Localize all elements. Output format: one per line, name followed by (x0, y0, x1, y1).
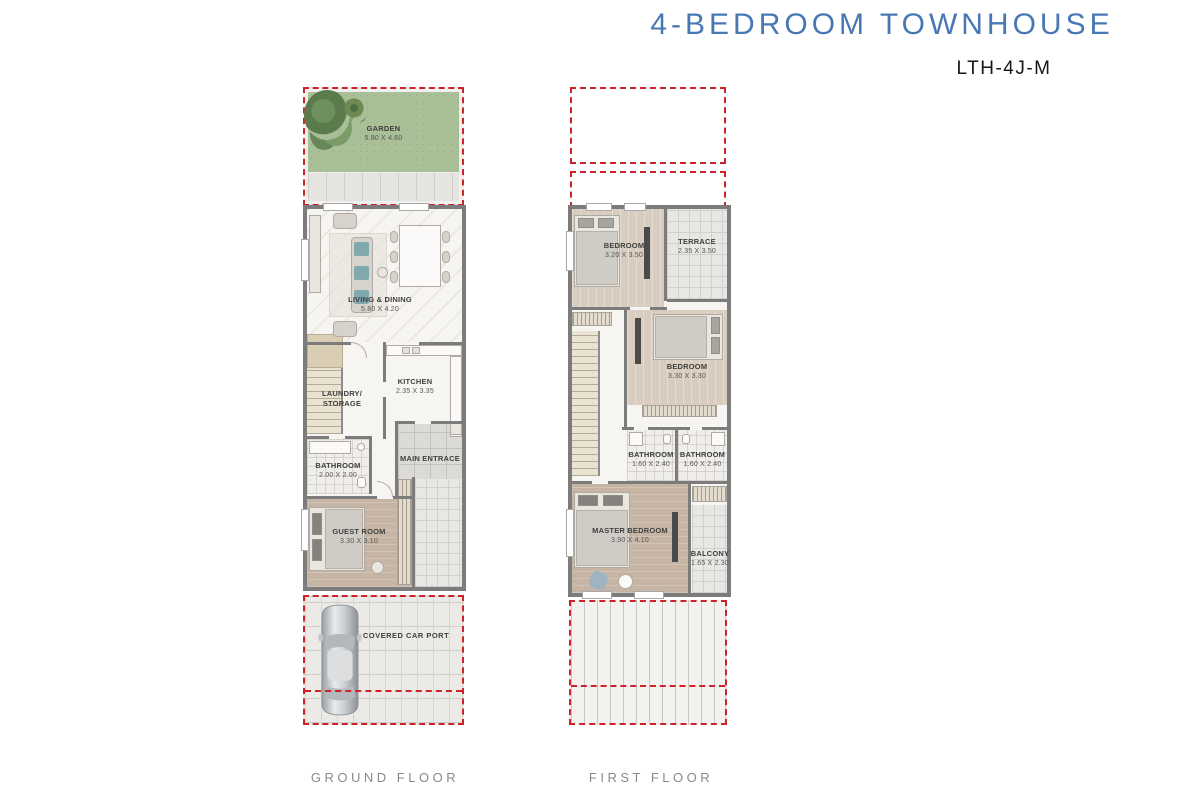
ground-floor-label: GROUND FLOOR (285, 770, 485, 785)
bathroom-1: BATHROOM 1.60 X 2.40 (627, 430, 675, 481)
room-name: COVERED CAR PORT (351, 631, 461, 641)
bedroom-2: BEDROOM 3.30 X 3.30 (627, 310, 727, 405)
ground-floor-plan: GARDEN 5.80 X 4.60 (303, 85, 468, 727)
window (566, 231, 574, 271)
room-label-bathroom-1: BATHROOM 1.60 X 2.40 (627, 450, 675, 470)
understair-storage (307, 334, 343, 368)
kitchen-counter (386, 345, 462, 356)
door-arc (351, 342, 367, 358)
room-name: BEDROOM (649, 362, 725, 372)
tv-unit (309, 215, 321, 293)
terrace: TERRACE 2.35 X 3.50 (667, 209, 727, 299)
wall (667, 299, 727, 302)
sink-icon (357, 443, 365, 451)
dining-chair (442, 231, 450, 243)
dining-table (399, 225, 441, 287)
room-dims: 1.65 X 2.30 (688, 559, 732, 568)
shower (629, 432, 643, 446)
room-label-garden: GARDEN 5.80 X 4.60 (308, 124, 459, 144)
room-label-bathroom-2: BATHROOM 1.60 X 2.40 (678, 450, 727, 470)
garden-grass: GARDEN 5.80 X 4.60 (308, 92, 459, 172)
room-name: BALCONY (688, 549, 732, 559)
bed-pillow (578, 495, 598, 506)
window (582, 591, 612, 599)
bathtub (309, 441, 351, 454)
unit-code: LTH-4J-M (904, 58, 1104, 80)
window (586, 203, 612, 211)
wall (431, 421, 462, 424)
room-dims: 2.35 X 3.50 (667, 247, 727, 256)
room-name: LIVING & DINING (325, 295, 435, 305)
room-name: MAIN ENTRACE (398, 454, 462, 464)
wardrobe-unit (635, 318, 641, 364)
window (624, 203, 646, 211)
carport-dashed-line (305, 690, 462, 692)
room-name: GUEST ROOM (315, 527, 403, 537)
dining-chair (390, 271, 398, 283)
wall (383, 342, 386, 382)
closet (692, 486, 727, 502)
shower (711, 432, 725, 446)
carport-zone: COVERED CAR PORT (303, 595, 464, 725)
balcony: BALCONY 1.65 X 2.30 (692, 505, 727, 593)
first-floor-plan: BEDROOM 3.20 X 3.50 TERRACE 2.35 X 3.50 (568, 85, 733, 727)
bathroom-room: BATHROOM 2.00 X 2.00 (307, 439, 369, 494)
wall (650, 307, 667, 310)
room-label-guest-room: GUEST ROOM 3.30 X 3.10 (315, 527, 403, 547)
room-dims: 1.60 X 2.40 (627, 460, 675, 469)
wall (369, 436, 372, 494)
window (399, 203, 429, 211)
garden-zone: GARDEN 5.80 X 4.60 (303, 87, 464, 206)
wardrobe (572, 312, 612, 326)
dining-chair (442, 271, 450, 283)
dining-chair (390, 231, 398, 243)
room-name: BEDROOM (588, 241, 660, 251)
room-dims: 3.30 X 3.30 (649, 372, 725, 381)
door-arc (377, 481, 393, 497)
pouf (618, 574, 633, 589)
room-dims: 3.20 X 3.50 (588, 251, 660, 260)
room-name: KITCHEN (380, 377, 450, 387)
toilet-icon (663, 434, 671, 444)
wall (307, 342, 351, 345)
wall (419, 342, 462, 345)
room-label-balcony: BALCONY 1.65 X 2.30 (688, 549, 732, 569)
first-floor-building: BEDROOM 3.20 X 3.50 TERRACE 2.35 X 3.50 (568, 205, 731, 597)
paved-strip (308, 173, 459, 201)
room-label-entrance: MAIN ENTRACE (398, 454, 462, 464)
sofa-cushion (354, 242, 369, 256)
open-below-outline (570, 87, 726, 164)
room-label-terrace: TERRACE 2.35 X 3.50 (667, 237, 727, 257)
room-name: TERRACE (667, 237, 727, 247)
room-name: BATHROOM (627, 450, 675, 460)
wardrobe (642, 405, 717, 417)
pouf (371, 561, 384, 574)
dining-chair (442, 251, 450, 263)
room-name: MASTER BEDROOM (582, 526, 678, 536)
armchair (333, 213, 357, 229)
wall (345, 436, 369, 439)
room-dims: 3.30 X 3.10 (315, 537, 403, 546)
room-label-carport: COVERED CAR PORT (351, 631, 461, 641)
ground-floor-building: LIVING & DINING 5.80 X 4.20 (303, 205, 466, 591)
room-name: BATHROOM (678, 450, 727, 460)
staircase (572, 331, 600, 476)
room-dims: 2.35 X 3.35 (380, 387, 450, 396)
room-label-master-bedroom: MASTER BEDROOM 3.90 X 4.10 (582, 526, 678, 546)
room-label-living-dining: LIVING & DINING 5.80 X 4.20 (325, 295, 435, 315)
roof-overhang-zone (569, 600, 727, 725)
wall (688, 484, 691, 593)
room-label-kitchen: KITCHEN 2.35 X 3.35 (380, 377, 450, 397)
bed-pillow (711, 337, 720, 354)
bathroom-2: BATHROOM 1.60 X 2.40 (678, 430, 727, 481)
room-label-laundry: LAUNDRY/ STORAGE (313, 389, 371, 409)
car-icon (313, 601, 367, 719)
wall (307, 436, 329, 439)
window (301, 239, 309, 281)
room-label-bedroom-1: BEDROOM 3.20 X 3.50 (588, 241, 660, 261)
bed-pillow (578, 218, 594, 228)
wall (383, 397, 386, 439)
wall (395, 421, 415, 424)
room-dims: 5.80 X 4.60 (308, 134, 459, 143)
room-dims: 2.00 X 2.00 (307, 471, 369, 480)
kitchen-sink (412, 347, 420, 354)
living-dining-room: LIVING & DINING 5.80 X 4.20 (307, 209, 462, 342)
page-title: 4-BEDROOM TOWNHOUSE (632, 8, 1132, 42)
wall (412, 477, 415, 587)
master-bedroom: MASTER BEDROOM 3.90 X 4.10 (572, 484, 688, 593)
wall (572, 481, 592, 484)
room-name: GARDEN (308, 124, 459, 134)
window (634, 591, 664, 599)
room-name: LAUNDRY/ STORAGE (313, 389, 371, 409)
side-patio (415, 479, 462, 587)
bed-blanket (655, 316, 707, 358)
coffee-table (377, 267, 388, 278)
room-name: BATHROOM (307, 461, 369, 471)
room-dims: 3.90 X 4.10 (582, 536, 678, 545)
wall (307, 496, 377, 499)
bed-pillow (603, 495, 623, 506)
toilet-icon (682, 434, 690, 444)
wall (608, 481, 727, 484)
armchair (333, 321, 357, 337)
wall (622, 427, 634, 430)
floorplan-page: 4-BEDROOM TOWNHOUSE LTH-4J-M GARDEN 5.80… (0, 0, 1200, 800)
roof-dashed-line (571, 685, 725, 687)
bed-pillow (711, 317, 720, 334)
first-floor-label: FIRST FLOOR (551, 770, 751, 785)
wall (572, 307, 630, 310)
room-label-bathroom: BATHROOM 2.00 X 2.00 (307, 461, 369, 481)
beanbag (587, 569, 609, 591)
room-label-bedroom-2: BEDROOM 3.30 X 3.30 (649, 362, 725, 382)
window (566, 509, 574, 557)
dining-chair (390, 251, 398, 263)
wall (702, 427, 727, 430)
room-dims: 5.80 X 4.20 (325, 305, 435, 314)
window (323, 203, 353, 211)
wall (624, 310, 627, 427)
palm-tree-icon (339, 93, 369, 123)
bedroom-1: BEDROOM 3.20 X 3.50 (572, 209, 664, 307)
bed-pillow (598, 218, 614, 228)
window (301, 509, 309, 551)
room-dims: 1.60 X 2.40 (678, 460, 727, 469)
wall (648, 427, 690, 430)
sofa-cushion (354, 266, 369, 280)
kitchen-sink (402, 347, 410, 354)
